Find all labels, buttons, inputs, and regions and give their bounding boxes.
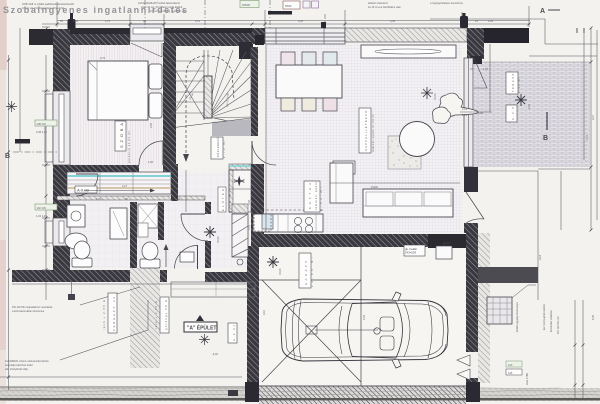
svg-text:előtető szerkezet: előtető szerkezet [368,1,388,5]
svg-text:±0,00: ±0,00 [433,93,437,100]
svg-text:1,20: 1,20 [483,67,489,71]
svg-text:laminált padló: laminált padló [314,181,318,210]
svg-text:DN 110 PE csapadékvíz vezetéke: DN 110 PE csapadékvíz vezetékek [12,305,53,309]
svg-text:elk. törtéybrilek tölje: elk. törtéybrilek tölje [5,367,28,371]
svg-text:6,95: 6,95 [298,19,304,23]
svg-text:a közcsatornában lévezetve: a közcsatornában lévezetve [12,309,45,313]
svg-text:5,03: 5,03 [362,314,366,320]
svg-text:-0,02: -0,02 [527,104,531,110]
svg-text:16×17,6×28: 16×17,6×28 [225,92,230,107]
svg-text:2,76: 2,76 [100,56,106,60]
svg-text:208 218: 208 218 [37,122,47,126]
svg-text:1,02 1,45: 1,02 1,45 [36,214,47,218]
svg-text:beépítőjé kézéhvé fedél: beépítőjé kézéhvé fedél [5,363,33,367]
svg-text:6,62 m²: 6,62 m² [319,187,323,211]
svg-text:100: 100 [508,363,513,367]
svg-text:4,10: 4,10 [262,309,266,315]
svg-text:2,19: 2,19 [462,113,468,117]
svg-text:közterület védelme: közterület védelme [549,310,553,332]
svg-text:B: B [543,135,548,142]
svg-text:és 10 cm-es zárófödém után: és 10 cm-es zárófödém után [368,5,401,9]
svg-text:laminált padló 27,04 m²: laminált padló 27,04 m² [371,114,375,152]
svg-text:2,27: 2,27 [122,184,128,188]
svg-text:-6,02: -6,02 [212,352,218,356]
svg-text:kültéri egység hőszivattyú: kültéri egység hőszivattyú [515,302,519,332]
svg-text:9,42 m²: 9,42 m² [517,77,521,93]
svg-text:gördögy 56 m: gördögy 56 m [164,300,168,330]
svg-text:±0,00: ±0,00 [216,236,220,243]
svg-text:1,00: 1,00 [148,160,154,164]
svg-text:A-0.01: A-0.01 [232,324,236,341]
svg-text:2,76: 2,76 [105,19,111,23]
svg-text:Hrsz 2788: Hrsz 2788 [525,373,529,385]
svg-text:A: A [540,8,545,15]
svg-text:1,70: 1,70 [96,197,102,201]
svg-text:1,20: 1,20 [488,19,494,23]
svg-text:tavh + 2,55 m: tavh + 2,55 m [154,301,158,329]
svg-text:2,72: 2,72 [585,134,589,140]
svg-text:3,55: 3,55 [247,199,251,205]
svg-text:1,01: 1,01 [247,224,251,230]
svg-text:4,00: 4,00 [478,111,484,115]
svg-text:3,27: 3,27 [591,114,595,120]
svg-text:4,45: 4,45 [390,19,396,23]
svg-text:DN 110 PE cső: DN 110 PE cső [556,316,560,334]
svg-text:4,18: 4,18 [538,254,542,260]
svg-text:A-0.03: A-0.03 [77,188,90,193]
svg-text:243×503: 243×503 [405,251,416,255]
svg-text:TERASZ: TERASZ [511,74,515,92]
svg-text:466/90: 466/90 [242,3,250,7]
svg-text:a rögzígehötésen lemezóma: a rögzígehötésen lemezóma [430,1,463,5]
svg-text:58/90: 58/90 [285,4,292,8]
svg-text:±0,00: ±0,00 [278,268,282,275]
svg-text:125: 125 [508,371,513,375]
svg-text:2,08 2,16: 2,08 2,16 [36,130,47,134]
svg-text:1,61: 1,61 [73,19,79,23]
svg-text:Szobaingyenes ingatlanhirdetés: Szobaingyenes ingatlanhirdetés [3,5,187,15]
svg-text:102 145: 102 145 [37,206,47,210]
svg-text:2,72 m²: 2,72 m² [222,140,226,158]
svg-text:4,05: 4,05 [149,122,153,128]
svg-text:1,50: 1,50 [175,197,181,201]
svg-text:ker vízóra jétél melletti: ker vízóra jétél melletti [542,304,546,330]
svg-text:2,19: 2,19 [462,107,468,111]
svg-text:"A" ÉPÜLET: "A" ÉPÜLET [187,324,216,332]
svg-text:5,19 m²: 5,19 m² [228,191,232,213]
svg-text:6,35: 6,35 [591,314,595,320]
svg-text:parketta 11,01 m²: parketta 11,01 m² [127,131,131,163]
svg-text:2,51: 2,51 [195,19,201,23]
svg-text:KL620RHD vízóra műknaszülvezér: KL620RHD vízóra műknaszülvezérlés [5,359,49,363]
svg-text:B: B [5,153,10,160]
